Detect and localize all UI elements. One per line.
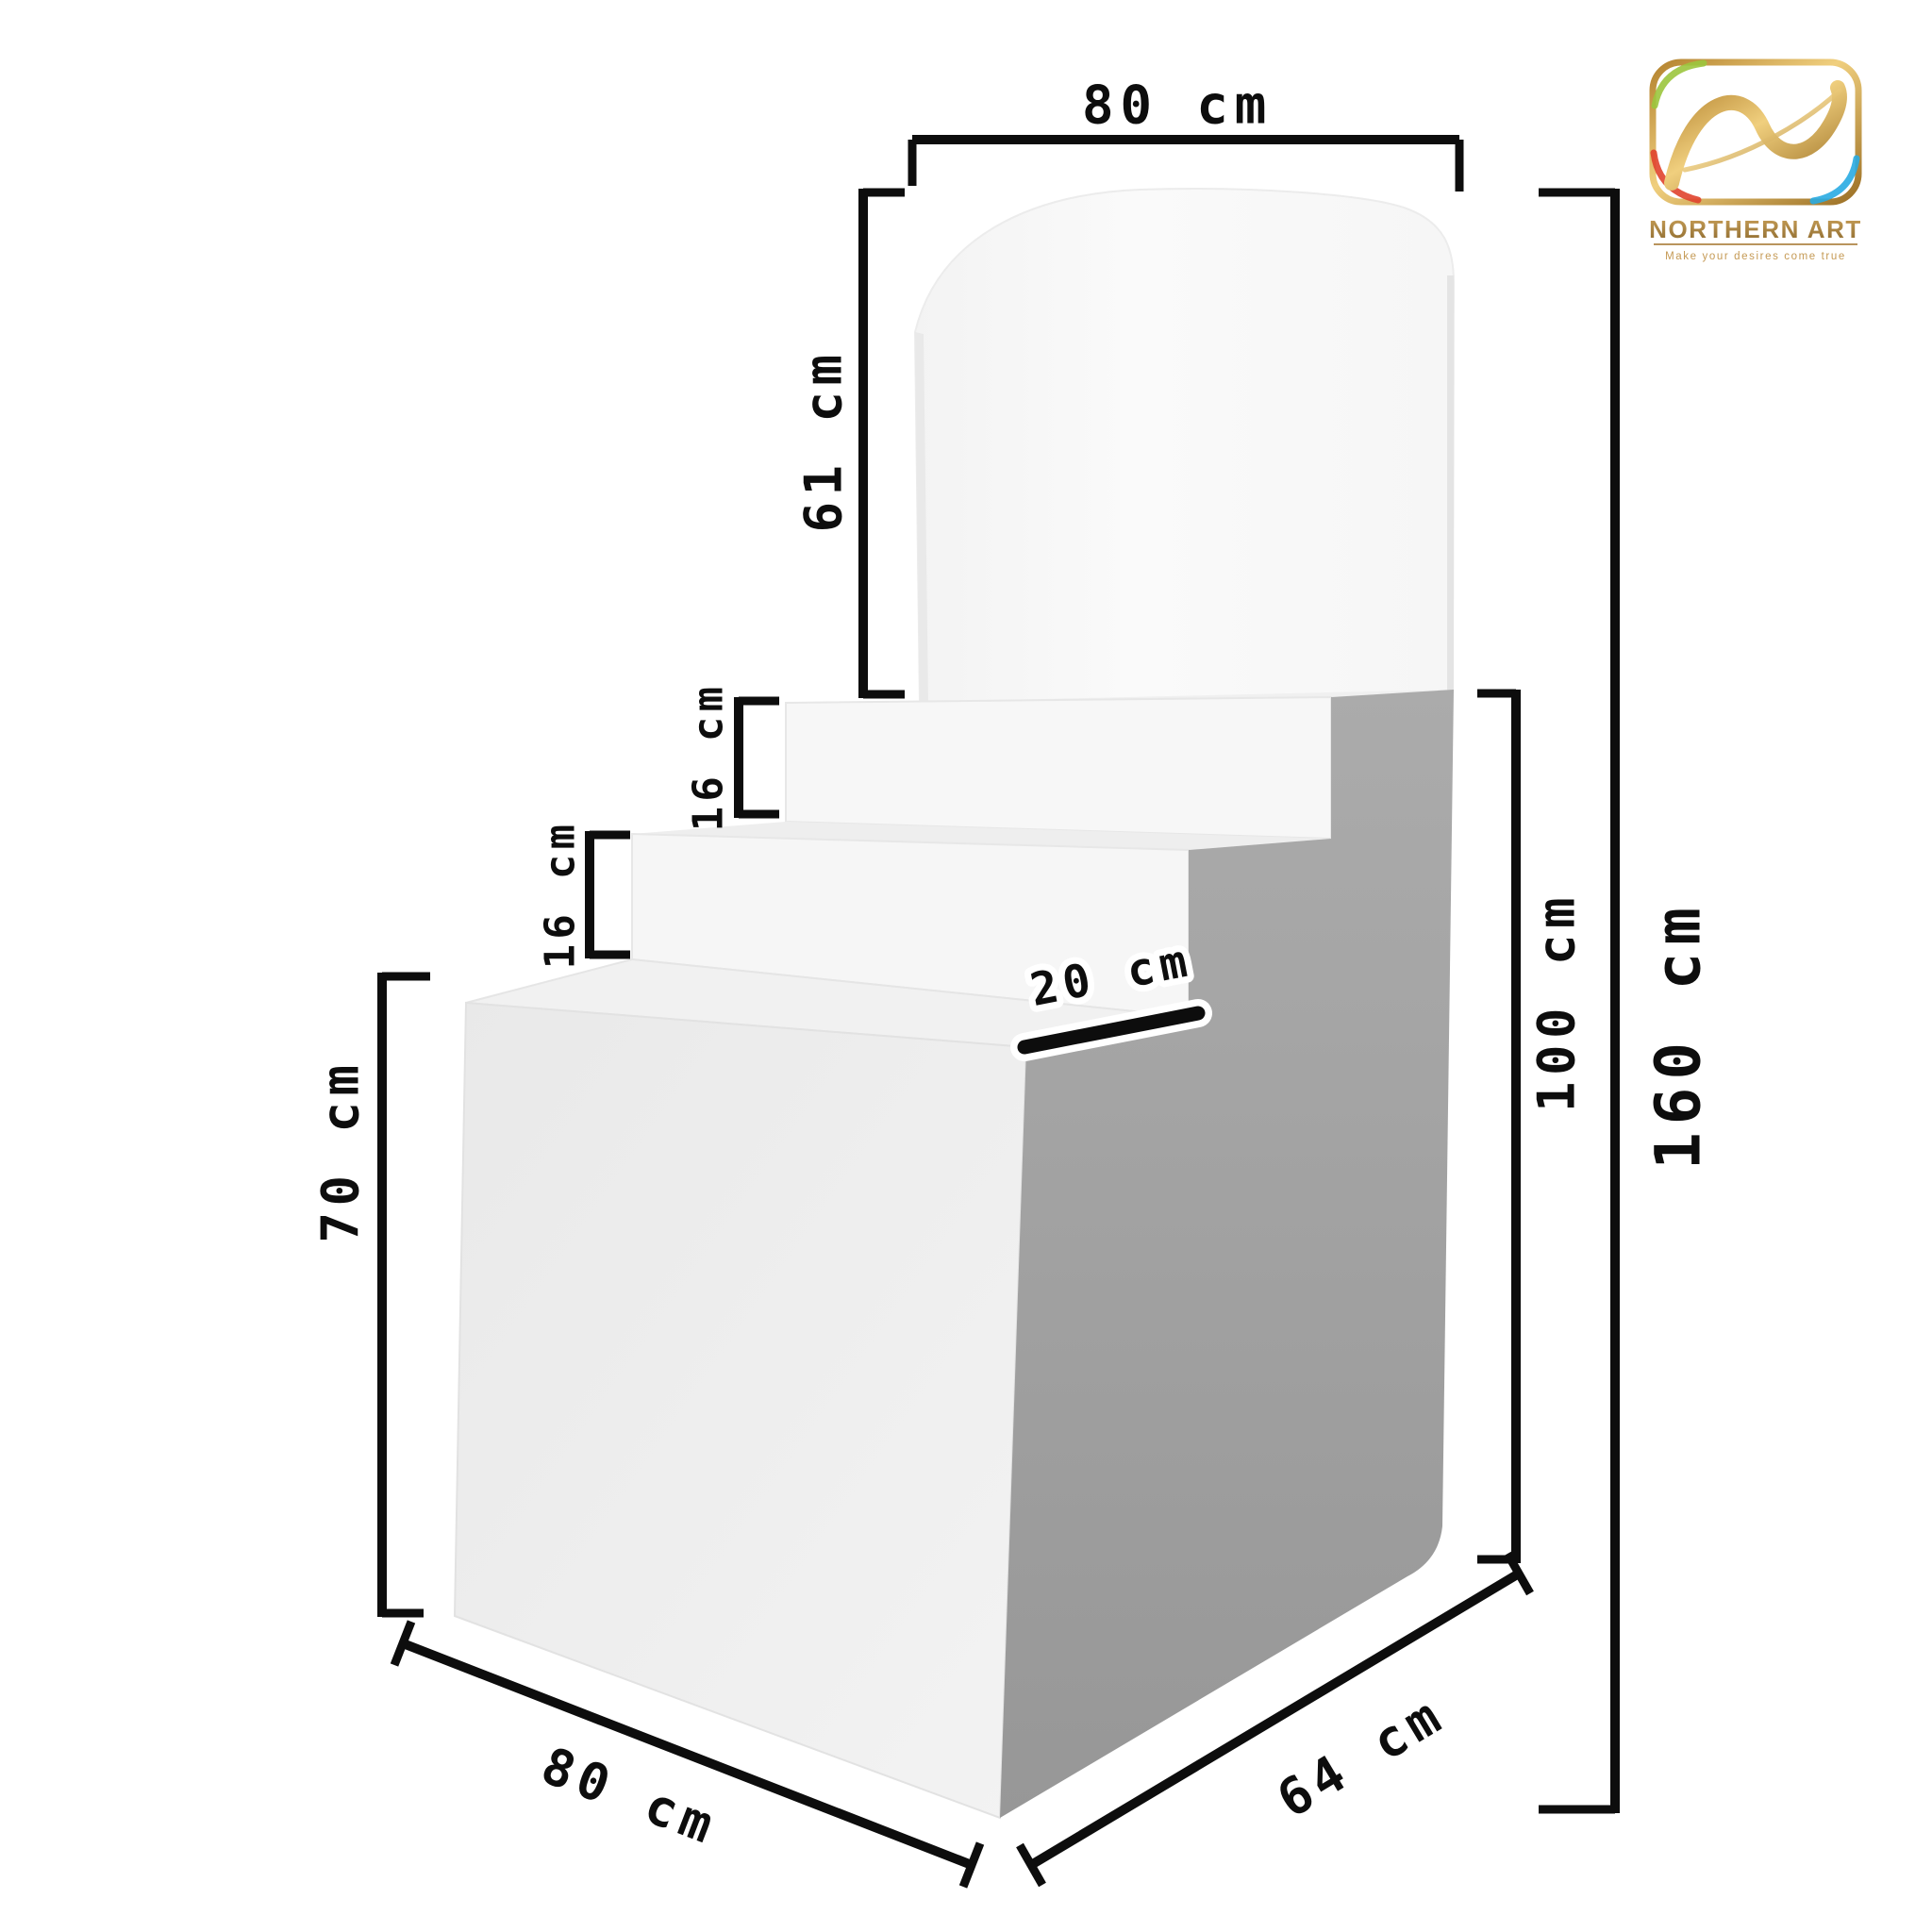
logo-title: NORTHERN ART bbox=[1649, 215, 1862, 243]
dim-label-backboard-height: 61 cm bbox=[794, 349, 854, 533]
dim-label-upper-section: 100 cm bbox=[1527, 891, 1587, 1112]
dimension-diagram-page: 80 cm 61 cm 16 cm 16 cm 70 cm 20 cm 80 c… bbox=[0, 0, 1932, 1932]
display-stand bbox=[455, 189, 1454, 1818]
dim-label-top-width: 80 cm bbox=[1082, 75, 1273, 137]
dim-label-lower-step: 16 cm bbox=[537, 820, 585, 970]
dim-label-base-height: 70 cm bbox=[311, 1059, 371, 1243]
upper-step-riser bbox=[786, 697, 1331, 839]
logo-tagline: Make your desires come true bbox=[1665, 251, 1846, 262]
backboard-front-face bbox=[915, 189, 1454, 704]
dim-label-upper-step: 16 cm bbox=[685, 682, 733, 832]
product-dimension-diagram: 80 cm 61 cm 16 cm 16 cm 70 cm 20 cm 80 c… bbox=[0, 0, 1932, 1932]
dim-label-total-height: 160 cm bbox=[1642, 900, 1715, 1170]
brand-logo: NORTHERN ART Make your desires come true bbox=[1649, 62, 1862, 262]
backboard-right-edge bbox=[1447, 275, 1454, 691]
